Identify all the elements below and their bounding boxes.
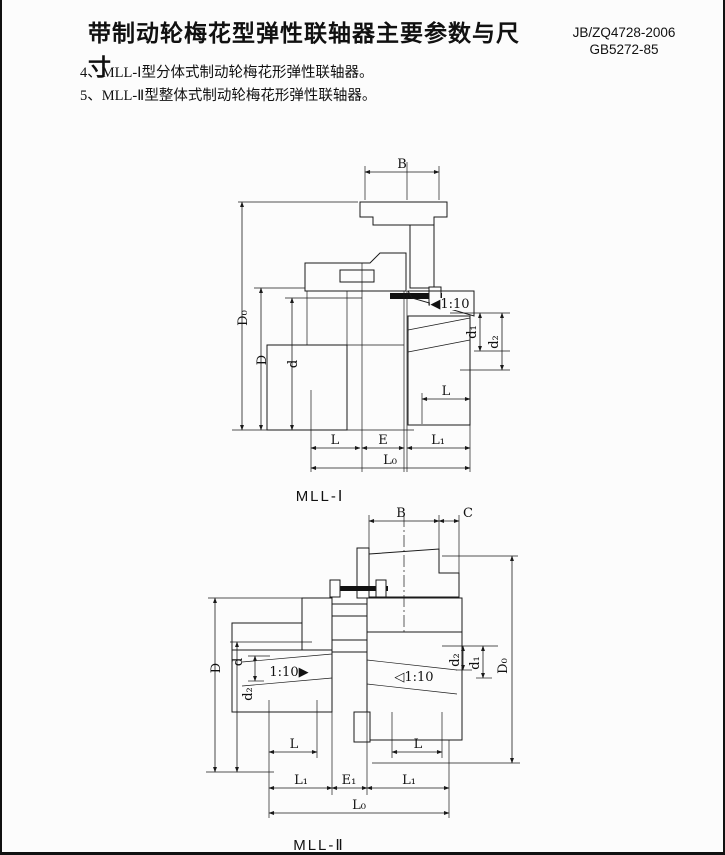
- mll2-caption: MLL-Ⅱ: [293, 837, 345, 854]
- catalog-page: 带制动轮梅花型弹性联轴器主要参数与尺寸 JB/ZQ4728-2006 GB527…: [0, 0, 725, 855]
- mll2-dim-label-d1: d₁: [468, 656, 483, 670]
- figure-mll2: 1:10▶ ◁1:10 B C D d: [197, 505, 537, 855]
- standard-number-1: JB/ZQ4728-2006: [558, 24, 690, 41]
- mll1-dim-label-E: E: [378, 433, 388, 448]
- note-item-5: 5、MLL-Ⅱ型整体式制动轮梅花形弹性联轴器。: [80, 85, 376, 108]
- mll1-dim-label-L0: L₀: [383, 453, 397, 468]
- mll1-taper-note: ◀1:10: [430, 297, 469, 312]
- mll2-dim-label-D: D: [209, 663, 224, 673]
- mll1-dim-label-d2: d₂: [487, 335, 502, 349]
- mll1-dim-label-d1: d₁: [465, 325, 480, 339]
- mll2-dim-label-L-right: L: [414, 737, 423, 752]
- mll1-dim-label-d: d: [286, 360, 301, 368]
- mll1-dim-label-B: B: [397, 157, 407, 172]
- mll2-dim-label-d2-right: d₂: [448, 653, 463, 667]
- mll2-dim-label-E1: E₁: [342, 773, 357, 788]
- mll2-taper-note-right: ◁1:10: [394, 670, 433, 685]
- mll2-dim-label-B: B: [396, 506, 406, 521]
- mll1-dim-label-L: L: [331, 433, 340, 448]
- mll2-hubs: [232, 598, 462, 795]
- mll1-left-flange: [305, 253, 406, 291]
- mll2-dim-label-L0: L₀: [352, 798, 366, 813]
- mll1-dim-label-D: D: [255, 355, 270, 365]
- mll2-taper-note-left: 1:10▶: [269, 665, 308, 680]
- standard-number-2: GB5272-85: [558, 41, 690, 58]
- mll2-dim-label-L1-left: L₁: [294, 773, 308, 788]
- mll1-dim-label-D0: D₀: [236, 310, 251, 326]
- note-item-4: 4、MLL-Ⅰ型分体式制动轮梅花形弹性联轴器。: [80, 62, 376, 85]
- mll2-dim-label-C: C: [463, 506, 473, 521]
- figure-mll1: ◀1:10 B D₀: [227, 155, 532, 505]
- standard-numbers: JB/ZQ4728-2006 GB5272-85: [558, 24, 690, 58]
- mll1-dim-label-L1: L₁: [431, 433, 445, 448]
- mll2-dim-label-D0: D₀: [496, 658, 511, 674]
- mll2-dim-C: [439, 515, 459, 573]
- mll1-dim-label-L-shaft: L: [442, 384, 451, 399]
- mll2-bolt: [330, 580, 388, 597]
- mll2-dim-label-d2-left: d₂: [241, 687, 256, 701]
- mll1-caption: MLL-Ⅰ: [296, 488, 345, 505]
- mll2-dim-label-d: d: [231, 658, 246, 666]
- mll2-dim-label-L-left: L: [290, 737, 299, 752]
- notes-list: 4、MLL-Ⅰ型分体式制动轮梅花形弹性联轴器。 5、MLL-Ⅱ型整体式制动轮梅花…: [80, 62, 376, 108]
- mll2-dim-label-L1-right: L₁: [402, 773, 416, 788]
